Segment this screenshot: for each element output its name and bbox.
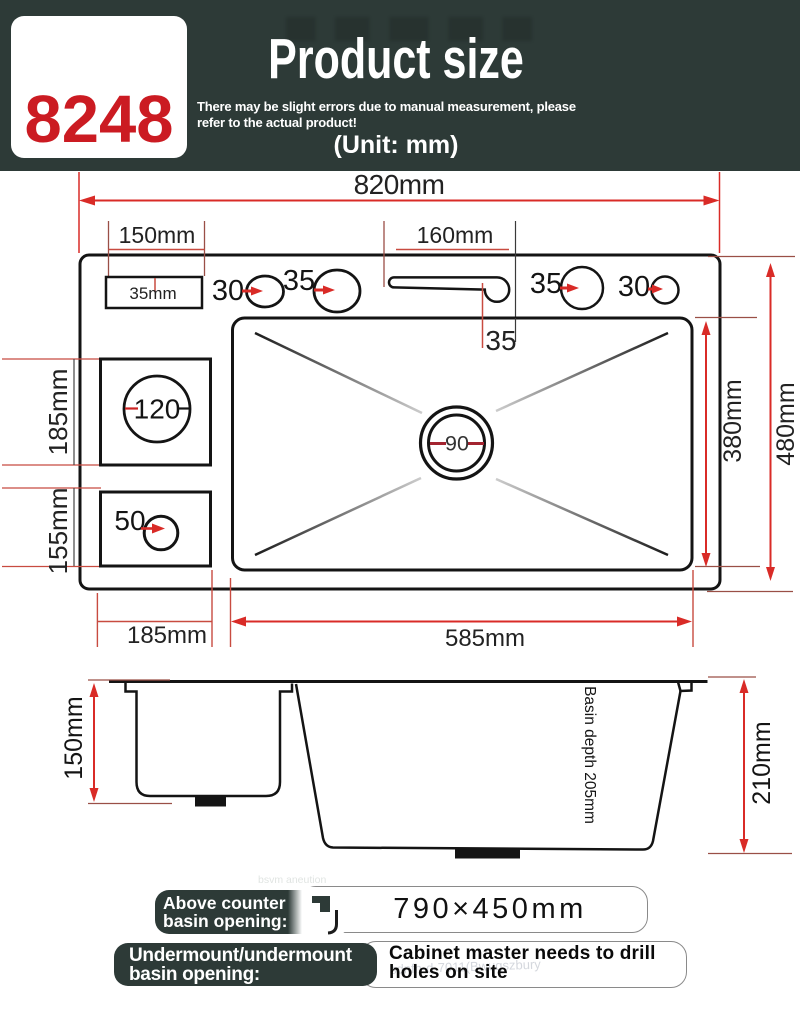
svg-text:155mm: 155mm [43, 488, 73, 575]
svg-text:30: 30 [212, 275, 244, 307]
svg-text:35: 35 [530, 268, 562, 300]
svg-text:35mm: 35mm [129, 284, 176, 303]
svg-text:30: 30 [618, 271, 650, 303]
svg-text:380mm: 380mm [719, 379, 747, 462]
svg-text:90: 90 [445, 432, 469, 456]
svg-text:50: 50 [114, 505, 145, 536]
svg-text:35: 35 [283, 265, 315, 297]
svg-text:185mm: 185mm [43, 369, 73, 456]
svg-text:160mm: 160mm [417, 222, 494, 248]
svg-text:Basin depth 205mm: Basin depth 205mm [581, 686, 598, 824]
svg-text:150mm: 150mm [60, 696, 88, 779]
svg-text:210mm: 210mm [748, 721, 776, 804]
svg-text:150mm: 150mm [119, 222, 196, 248]
svg-text:120: 120 [134, 394, 181, 425]
svg-text:185mm: 185mm [127, 622, 207, 649]
svg-text:480mm: 480mm [772, 382, 800, 465]
svg-text:820mm: 820mm [354, 169, 445, 200]
svg-text:35: 35 [485, 325, 516, 356]
svg-text:585mm: 585mm [445, 625, 525, 652]
